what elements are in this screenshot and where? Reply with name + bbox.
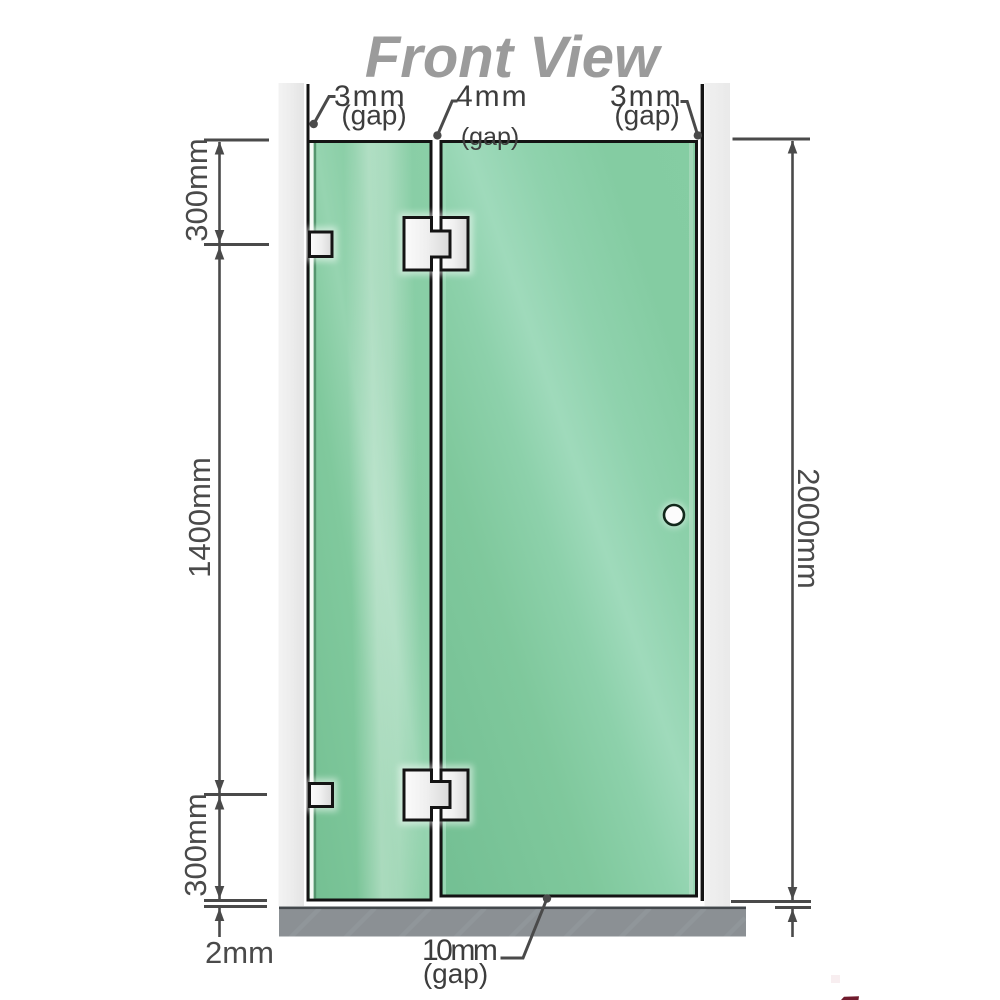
svg-text:(gap): (gap): [341, 100, 406, 131]
svg-text:(gap): (gap): [614, 100, 679, 131]
svg-text:(gap): (gap): [423, 958, 488, 989]
svg-text:2000mm: 2000mm: [791, 468, 826, 589]
svg-text:4mm: 4mm: [456, 80, 529, 113]
svg-text:300mm: 300mm: [179, 138, 214, 241]
svg-text:2mm: 2mm: [205, 935, 274, 970]
svg-text:1400mm: 1400mm: [182, 457, 217, 578]
svg-text:300mm: 300mm: [178, 793, 213, 896]
svg-text:(gap): (gap): [461, 123, 519, 151]
